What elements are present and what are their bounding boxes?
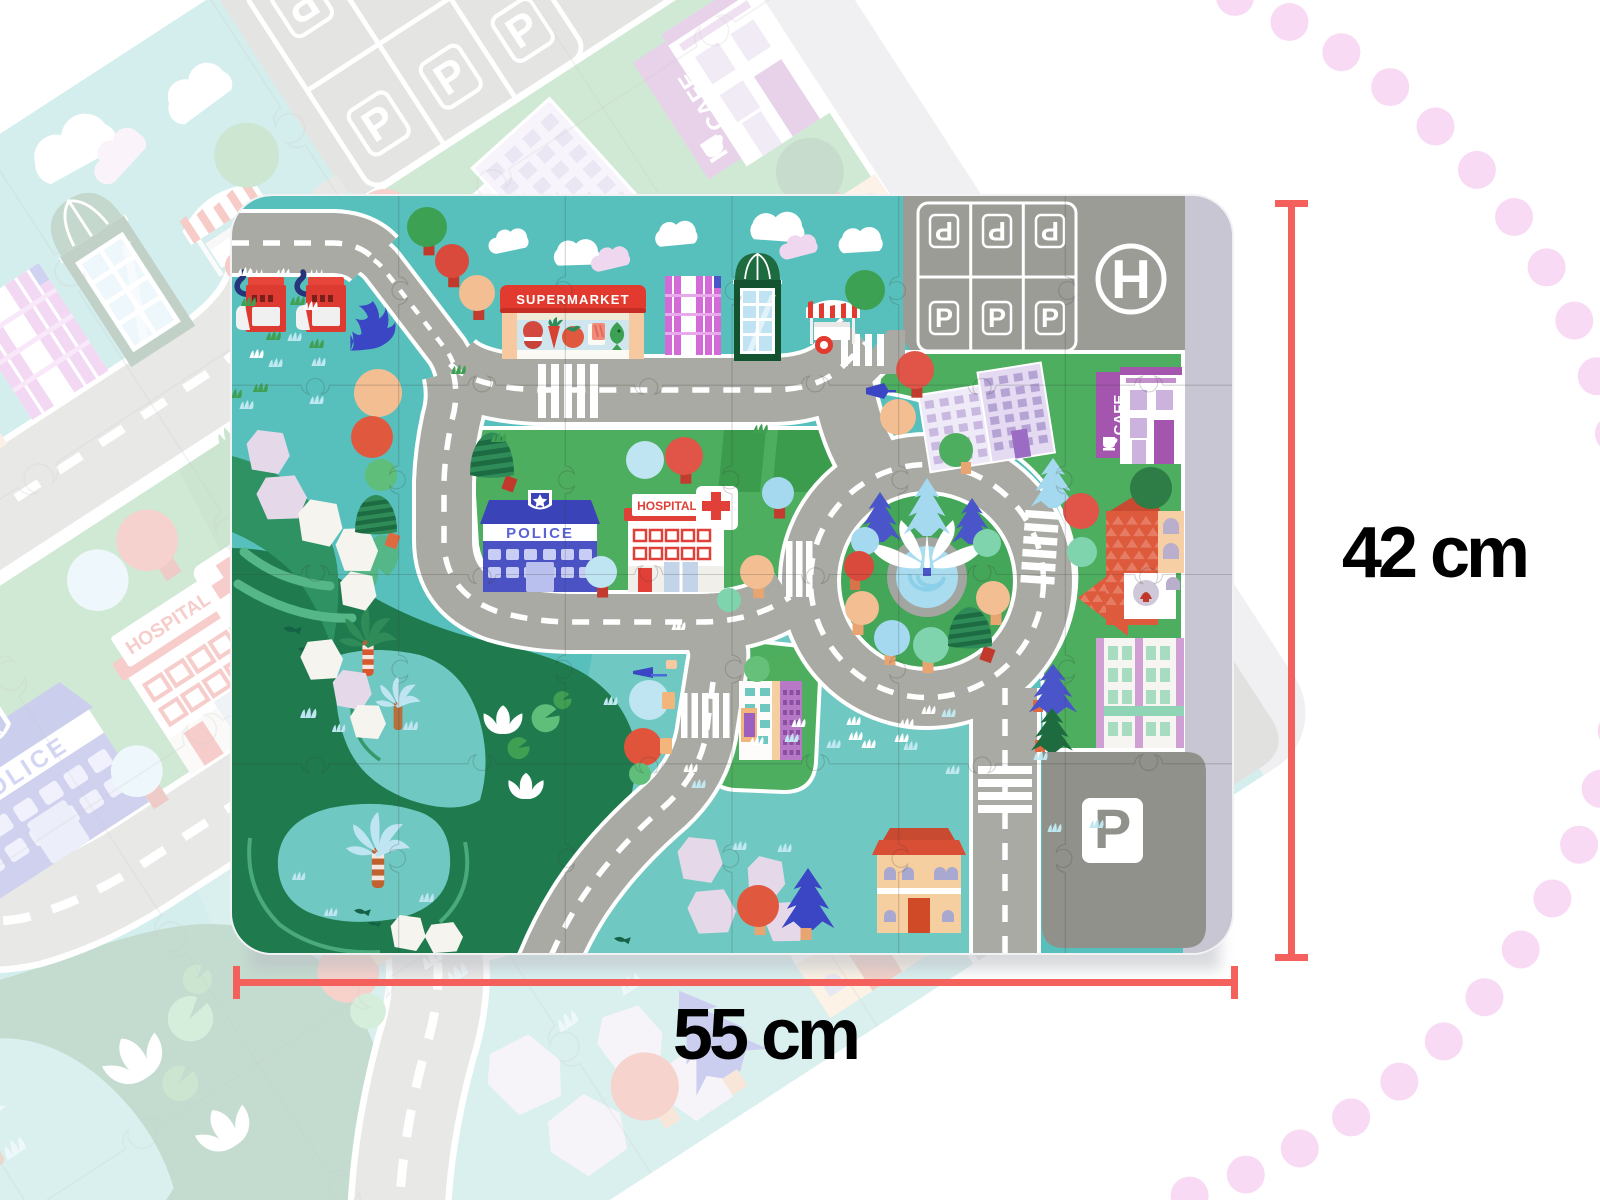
svg-text:42 cm: 42 cm: [1342, 513, 1526, 593]
svg-text:55 cm: 55 cm: [673, 995, 857, 1075]
